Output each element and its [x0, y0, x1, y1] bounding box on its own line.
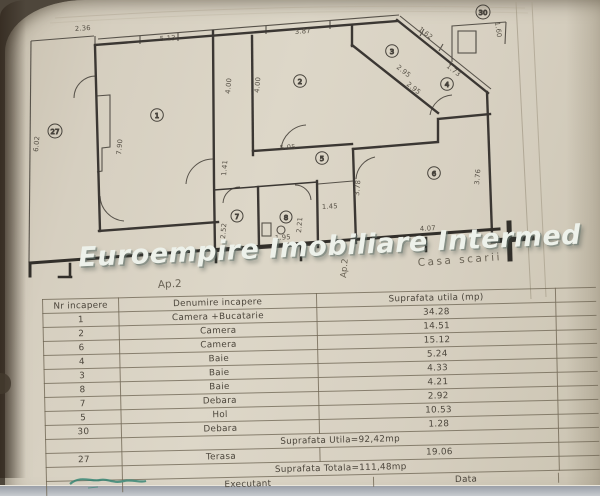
- signature-stamp: [58, 470, 168, 492]
- dim-label: 5.13: [160, 34, 176, 43]
- room-number: 1: [155, 112, 159, 120]
- dim-label: 3.76: [473, 169, 482, 186]
- room-number: 4: [445, 81, 450, 89]
- room-circle: 7: [231, 210, 243, 222]
- room-circle: 27: [48, 124, 62, 138]
- dim-label: 1.73: [445, 62, 462, 78]
- dim-label: 2.21: [295, 217, 304, 234]
- room-circle: 2: [294, 75, 307, 88]
- dim-label: 3.78: [353, 180, 362, 197]
- dim-label: 2.36: [75, 24, 91, 33]
- room-area-table: Nr incapere Denumire incapere Suprafata …: [42, 287, 598, 496]
- dim-label: 6.02: [32, 136, 41, 153]
- data-label: Data: [373, 473, 559, 487]
- dim-label: 4.00: [253, 77, 262, 94]
- room-number: 6: [432, 170, 437, 178]
- plan-main-walls: [95, 20, 492, 251]
- dim-label: 1.41: [220, 160, 229, 177]
- room-circle: 1: [151, 109, 164, 122]
- room-number: 30: [479, 9, 488, 17]
- room-circle: 5: [316, 152, 329, 165]
- room-number: 2: [298, 78, 302, 86]
- dimension-labels: 2.36 5.13 3.87 1.62 1.73 2.95 2.95 1.60 …: [32, 21, 503, 242]
- dim-label: 7.90: [115, 139, 124, 156]
- door-arcs: [74, 76, 452, 221]
- dim-label: 4.00: [224, 78, 233, 95]
- dim-label: 5.05: [280, 143, 296, 152]
- room-number: 5: [320, 155, 324, 163]
- room-number: 27: [51, 128, 60, 136]
- room-number: 7: [235, 213, 239, 221]
- room-number: 8: [284, 214, 288, 222]
- room-circle: 3: [386, 45, 399, 58]
- room-circle: 8: [280, 211, 292, 223]
- room-circle: 6: [428, 167, 441, 180]
- apartment-label: Ap.2: [158, 278, 182, 291]
- dim-label: 2.95: [395, 63, 412, 79]
- room-number: 3: [390, 48, 394, 56]
- room-circle: 4: [441, 78, 454, 91]
- dim-label: 1.45: [322, 202, 338, 211]
- dim-label: 1.60: [493, 21, 503, 38]
- dim-label: 3.87: [295, 27, 311, 36]
